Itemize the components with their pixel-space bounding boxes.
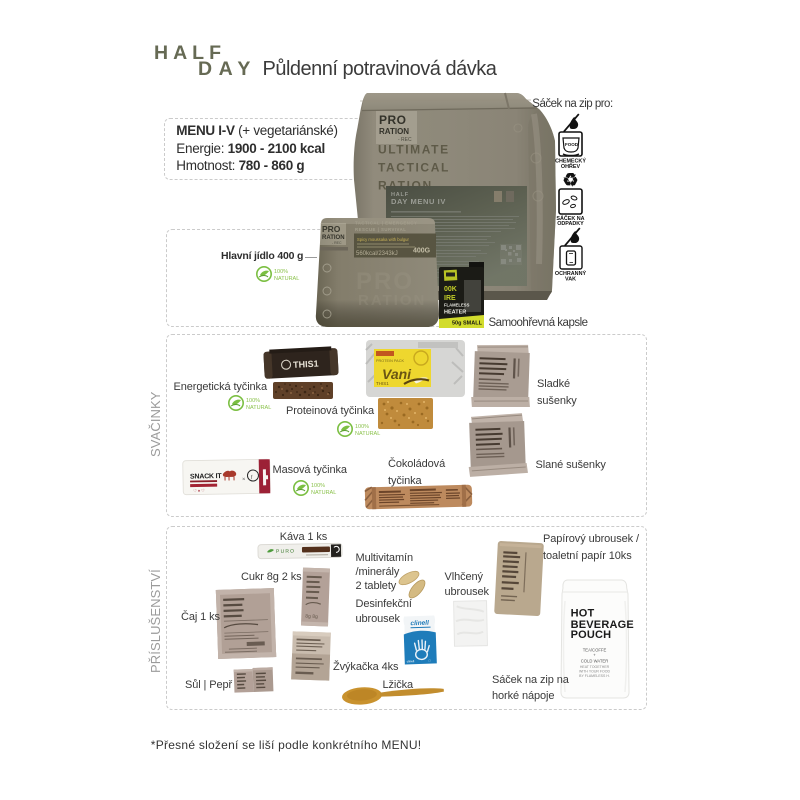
svg-text:COLD WATER: COLD WATER — [581, 659, 608, 664]
svg-text:TACTICAL | EMERGENCY: TACTICAL | EMERGENCY — [355, 221, 417, 226]
svg-text:BY FLAMELESS H.: BY FLAMELESS H. — [579, 674, 610, 678]
svg-text:□: □ — [429, 659, 431, 663]
svg-text:PROTEIN PACK: PROTEIN PACK — [376, 359, 404, 363]
svg-text:PRO: PRO — [379, 113, 407, 127]
svg-text:FLAMELESS: FLAMELESS — [444, 303, 470, 308]
svg-text:- REC: - REC — [332, 241, 342, 245]
svg-text:clinell: clinell — [410, 620, 429, 628]
svg-text:ODPADKY: ODPADKY — [557, 221, 584, 227]
svg-text:00K: 00K — [444, 286, 457, 293]
svg-text:PURO: PURO — [276, 549, 295, 555]
svg-text:♡ ♦ ♡: ♡ ♦ ♡ — [193, 488, 205, 493]
svg-text:THIS1: THIS1 — [293, 359, 319, 370]
svg-text:clinell: clinell — [407, 659, 415, 663]
svg-text:POUCH: POUCH — [571, 629, 612, 641]
svg-text:RESCUE | SURVIVAL: RESCUE | SURVIVAL — [355, 227, 406, 232]
svg-text:400G: 400G — [413, 248, 431, 255]
svg-text:×: × — [242, 477, 245, 483]
svg-text:PRO: PRO — [356, 268, 414, 295]
svg-text:TACTICAL: TACTICAL — [378, 161, 450, 175]
svg-text:RATION: RATION — [358, 292, 426, 309]
svg-text:560kcal/2343kJ: 560kcal/2343kJ — [356, 251, 398, 257]
svg-text:HEAT TOGETHER: HEAT TOGETHER — [580, 665, 610, 669]
svg-text:VAK: VAK — [565, 277, 576, 283]
svg-text:50g SMALL: 50g SMALL — [452, 321, 483, 327]
svg-text:♻: ♻ — [562, 170, 578, 190]
svg-text:PRO: PRO — [322, 224, 341, 234]
svg-text:HEATER: HEATER — [444, 310, 466, 316]
svg-text:Spicy moussaka with bulgur: Spicy moussaka with bulgur — [357, 237, 410, 242]
svg-text:RATION: RATION — [379, 127, 409, 136]
svg-text:HOT: HOT — [571, 607, 595, 619]
svg-text:DAY MENU IV: DAY MENU IV — [391, 197, 446, 206]
svg-text:8g 8g: 8g 8g — [305, 614, 318, 620]
svg-text:Vani: Vani — [382, 366, 412, 382]
svg-text:THIS1: THIS1 — [376, 381, 389, 386]
svg-text:FOOD: FOOD — [565, 142, 579, 147]
svg-text:SNACK IT: SNACK IT — [190, 473, 222, 481]
svg-text:WITH YOUR FOOD: WITH YOUR FOOD — [579, 670, 611, 674]
svg-text:IRE: IRE — [444, 295, 456, 302]
svg-text:OHŘEV: OHŘEV — [561, 162, 581, 170]
svg-text:ULTIMATE: ULTIMATE — [378, 143, 450, 157]
